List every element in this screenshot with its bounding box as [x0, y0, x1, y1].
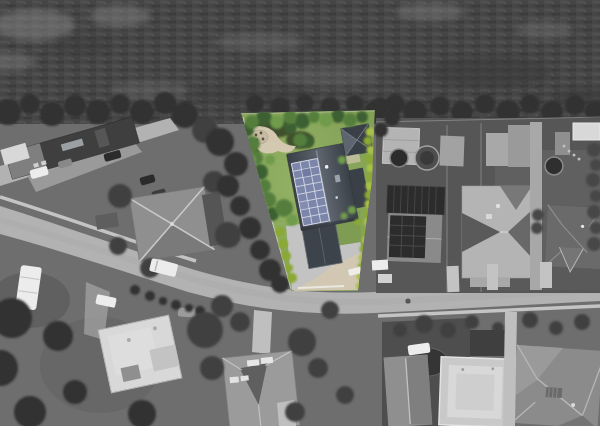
round-tank-small: [390, 149, 408, 167]
aerial-scene: [0, 0, 600, 426]
gray-shed-a: [439, 136, 464, 167]
flat-roof-house-b: [439, 357, 511, 426]
driveway-center: [252, 310, 272, 354]
courtyard-dark: [470, 330, 506, 356]
gray-shed-b: [486, 133, 508, 166]
road-mark: [405, 298, 410, 303]
gable-house-a: [384, 355, 433, 426]
white-shed-top: [573, 123, 600, 140]
driveway-b-c: [503, 312, 517, 426]
big-hip-house-c: [512, 345, 600, 426]
aerial-photo: [0, 0, 600, 426]
tank-inner: [420, 151, 434, 165]
white-shed-small-b: [378, 274, 392, 283]
right-block: [372, 117, 600, 293]
white-shed-small-a: [372, 260, 389, 271]
pyramid-roof-house: [129, 184, 228, 261]
round-pool: [545, 157, 563, 175]
gray-shed-c: [508, 125, 530, 167]
neighbour-solar-house: [385, 185, 446, 263]
scrub-field: [0, 0, 600, 128]
